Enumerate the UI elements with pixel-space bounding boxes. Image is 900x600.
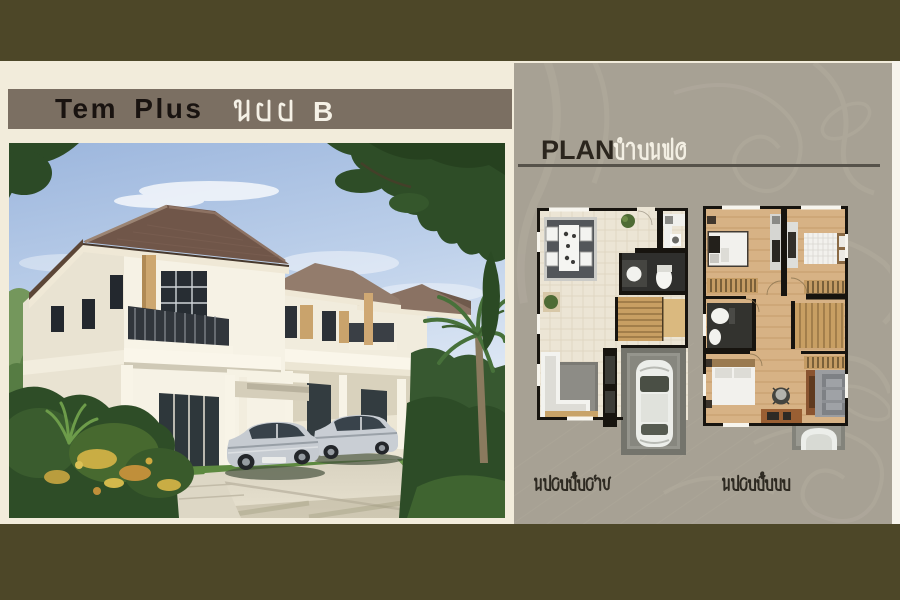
svg-text:PLAN: PLAN — [541, 135, 615, 165]
svg-text:B: B — [313, 96, 333, 126]
